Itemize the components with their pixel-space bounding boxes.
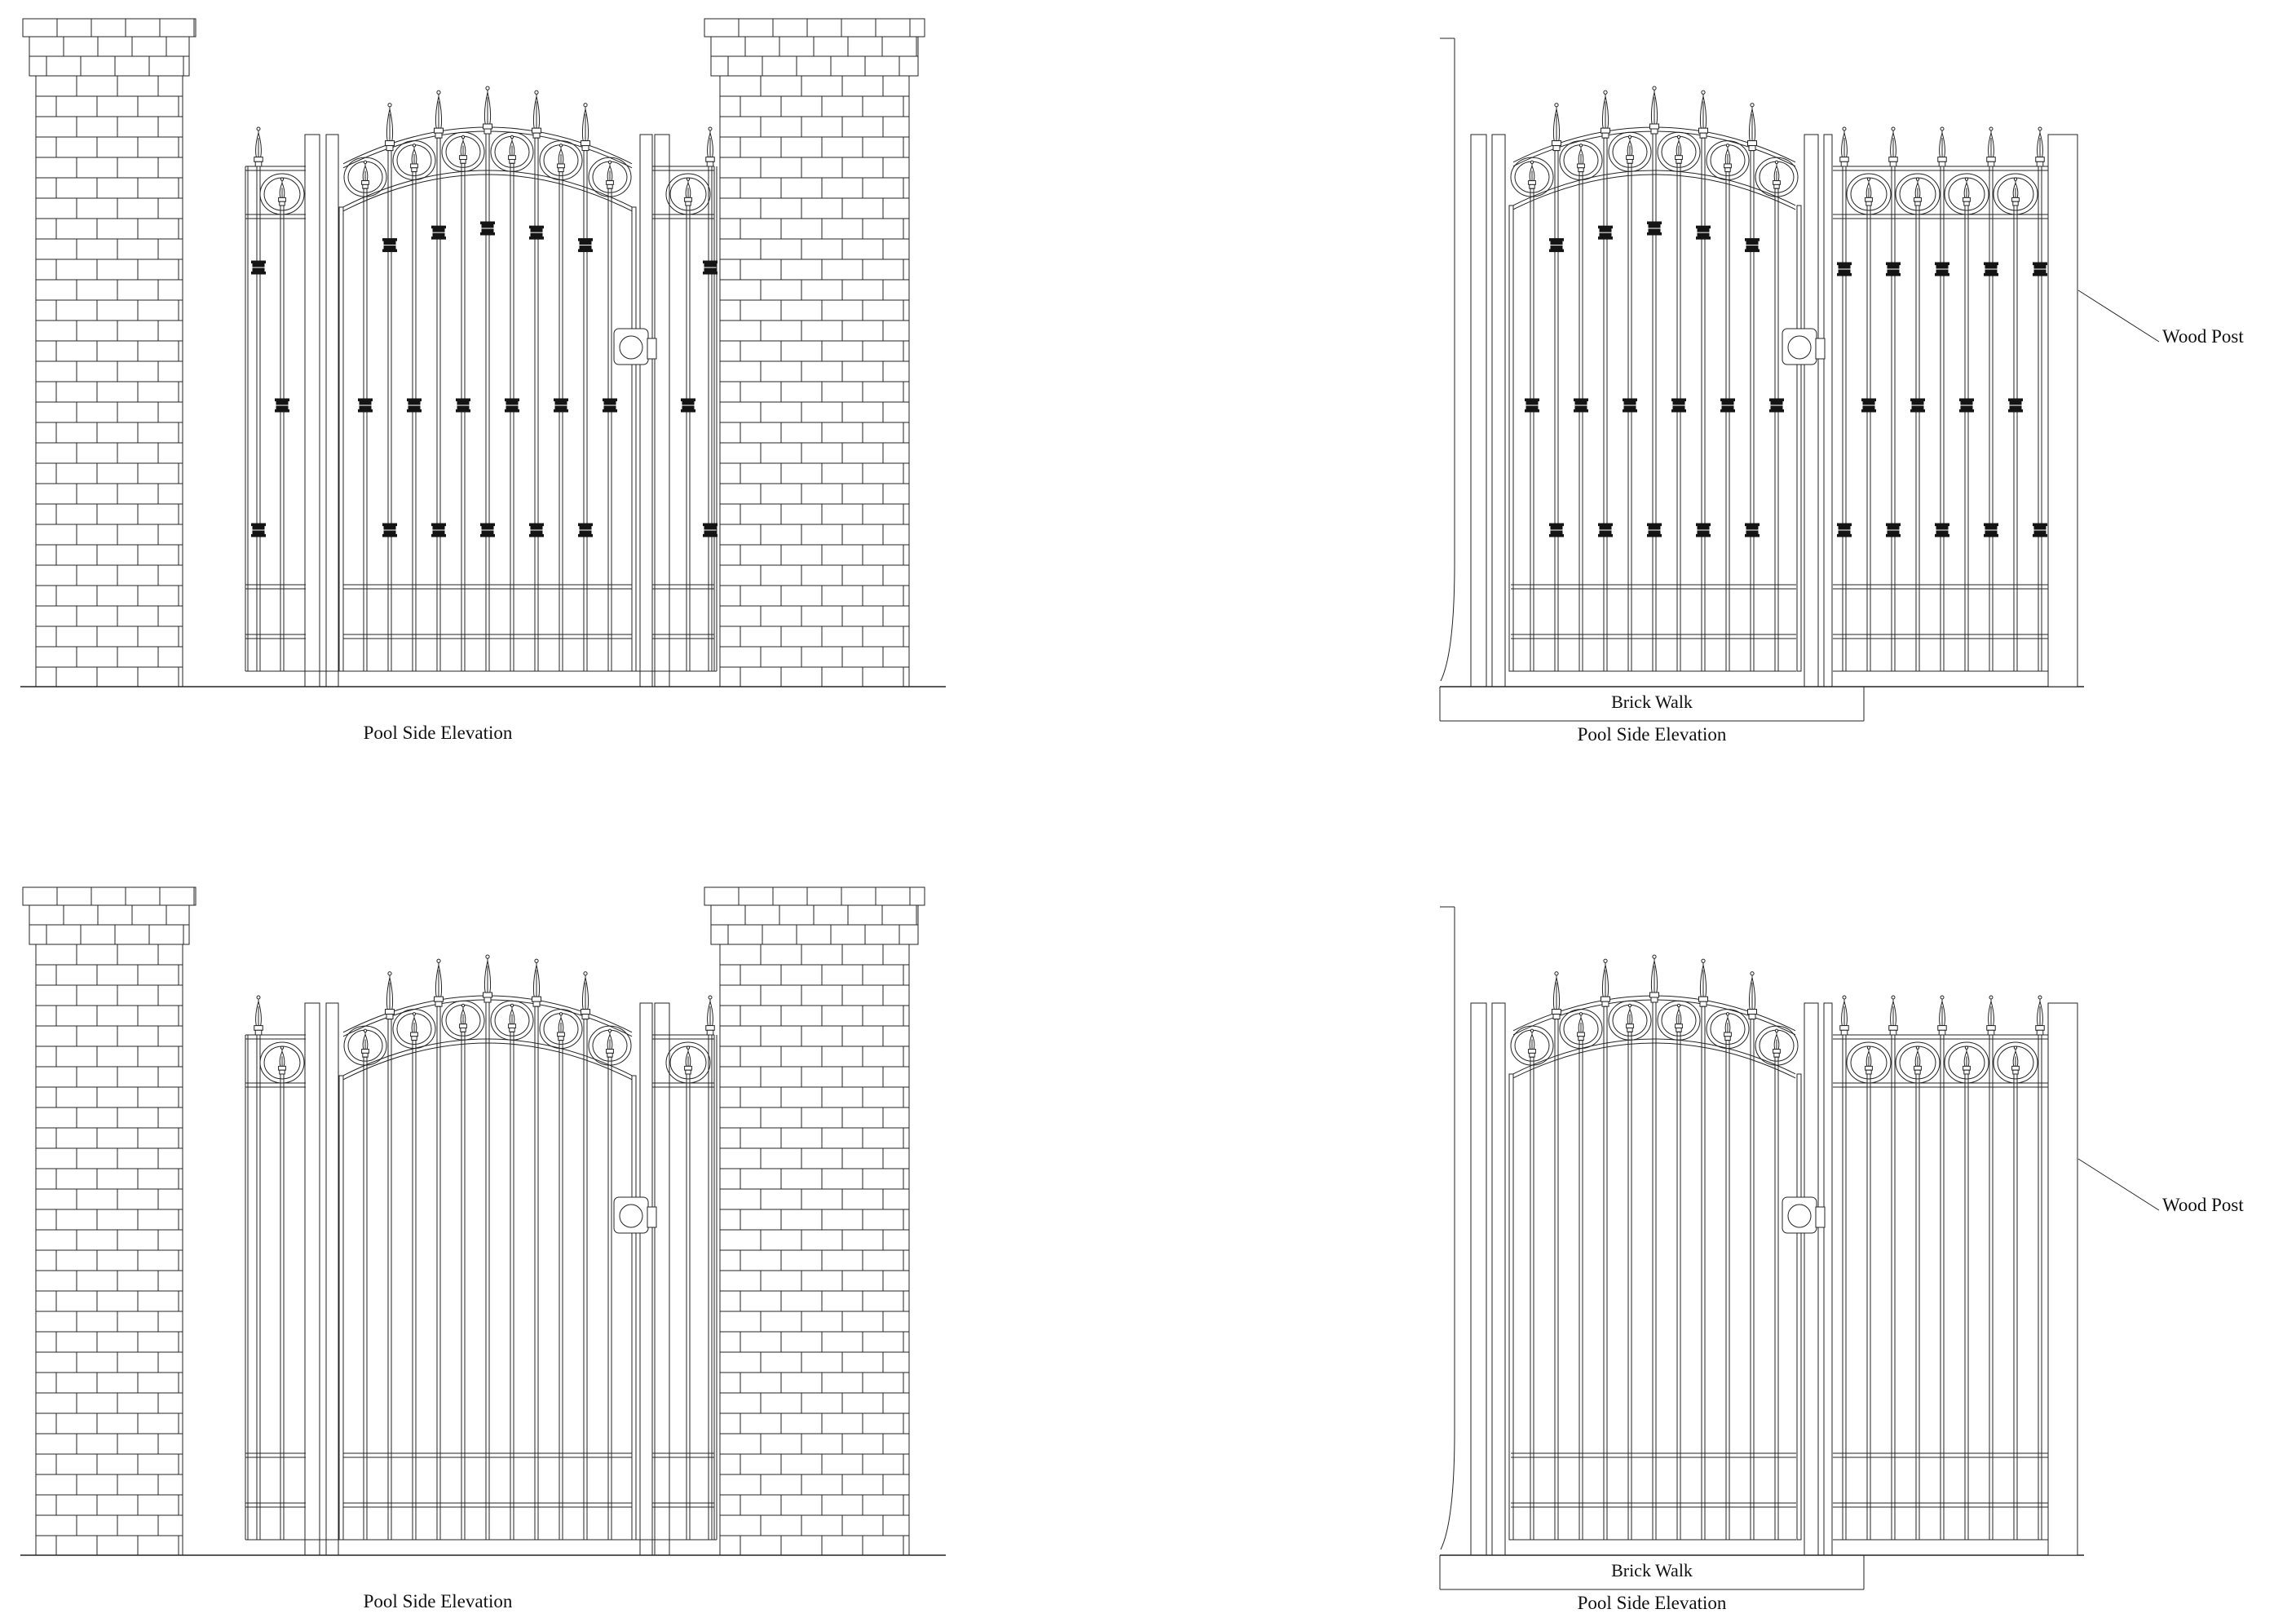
gate-elevation-drawing bbox=[0, 0, 2296, 1618]
elevation-bottom-left bbox=[20, 887, 946, 1555]
brick-walk-label-top: Brick Walk bbox=[1611, 692, 1693, 712]
brick-column bbox=[23, 19, 196, 687]
wood-post bbox=[2048, 135, 2077, 687]
brick-walk-label-bottom: Brick Walk bbox=[1611, 1561, 1693, 1580]
caption-bottom-right: Pool Side Elevation bbox=[1578, 1593, 1727, 1613]
drawing-sheet: Pool Side Elevation Brick Walk Pool Side… bbox=[0, 0, 2296, 1618]
elevation-bottom-right bbox=[1440, 907, 2159, 1589]
wood-post-label-top: Wood Post bbox=[2162, 326, 2244, 347]
caption-top-left: Pool Side Elevation bbox=[364, 723, 513, 743]
caption-bottom-left: Pool Side Elevation bbox=[364, 1591, 513, 1611]
brick-column bbox=[704, 887, 925, 1555]
brick-column bbox=[704, 19, 925, 687]
wood-post bbox=[2048, 1003, 2077, 1555]
wood-post-label-bottom: Wood Post bbox=[2162, 1195, 2244, 1215]
elevation-top-left bbox=[20, 19, 946, 687]
caption-top-right: Pool Side Elevation bbox=[1578, 724, 1727, 745]
elevation-top-right bbox=[1440, 38, 2159, 721]
brick-column bbox=[23, 887, 196, 1555]
